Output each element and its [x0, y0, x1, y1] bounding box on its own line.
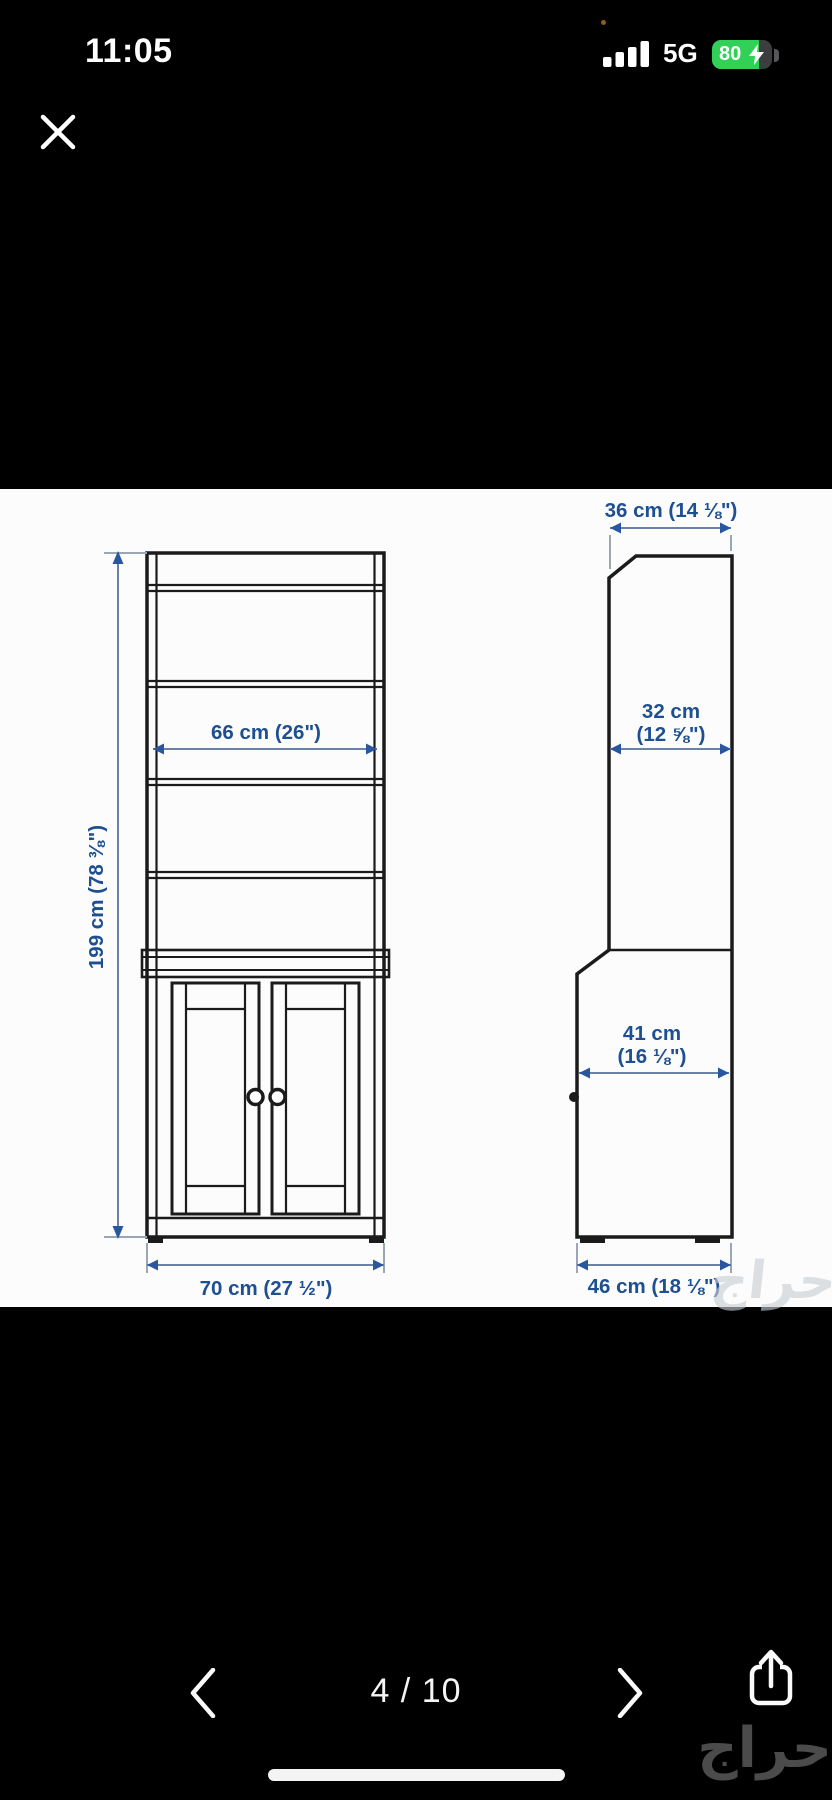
battery-charging-bolt-icon: [749, 44, 765, 65]
share-icon[interactable]: [745, 1646, 797, 1708]
dim-upper-depth-label-2: (12 ⅝"): [637, 723, 706, 746]
dim-lower-depth-label-2: (16 ⅛"): [618, 1045, 687, 1068]
photo-furniture-dimension-diagram[interactable]: 199 cm (78 ⅜") 66 cm (26") 70 cm (27 ½")…: [0, 489, 832, 1307]
dim-base-depth-label: 46 cm (18 ⅛"): [588, 1275, 721, 1298]
image-pager-counter: 4 / 10: [316, 1672, 516, 1711]
dim-lower-depth-label-1: 41 cm: [623, 1022, 681, 1045]
previous-image-chevron-icon[interactable]: [188, 1668, 218, 1718]
watermark-haraj-logo: حراج: [596, 1716, 832, 1781]
door-knob-left: [248, 1090, 263, 1105]
side-door-knob: [569, 1092, 579, 1102]
dim-shelf-width-label: 66 cm (26"): [211, 721, 321, 744]
photo-viewer-screen: 11:05 5G 80: [0, 0, 832, 1800]
dim-base-width-label: 70 cm (27 ½"): [200, 1277, 333, 1300]
close-icon[interactable]: [40, 114, 76, 150]
camera-indicator-dot: [601, 20, 606, 25]
cabinet-dimension-drawing: 199 cm (78 ⅜") 66 cm (26") 70 cm (27 ½")…: [0, 489, 832, 1307]
dim-top-depth-label: 36 cm (14 ⅛"): [605, 499, 738, 522]
status-time: 11:05: [85, 32, 173, 71]
signal-strength-icon: [603, 40, 651, 68]
network-type-label: 5G: [663, 38, 698, 69]
dim-upper-depth-label-1: 32 cm: [642, 700, 700, 723]
door-knob-right: [270, 1090, 285, 1105]
next-image-chevron-icon[interactable]: [615, 1668, 645, 1718]
home-indicator[interactable]: [268, 1769, 565, 1781]
battery-nub: [774, 49, 779, 62]
battery-percent: 80: [719, 43, 741, 66]
battery-icon: 80: [712, 40, 772, 69]
dim-height-label: 199 cm (78 ⅜"): [85, 825, 108, 969]
